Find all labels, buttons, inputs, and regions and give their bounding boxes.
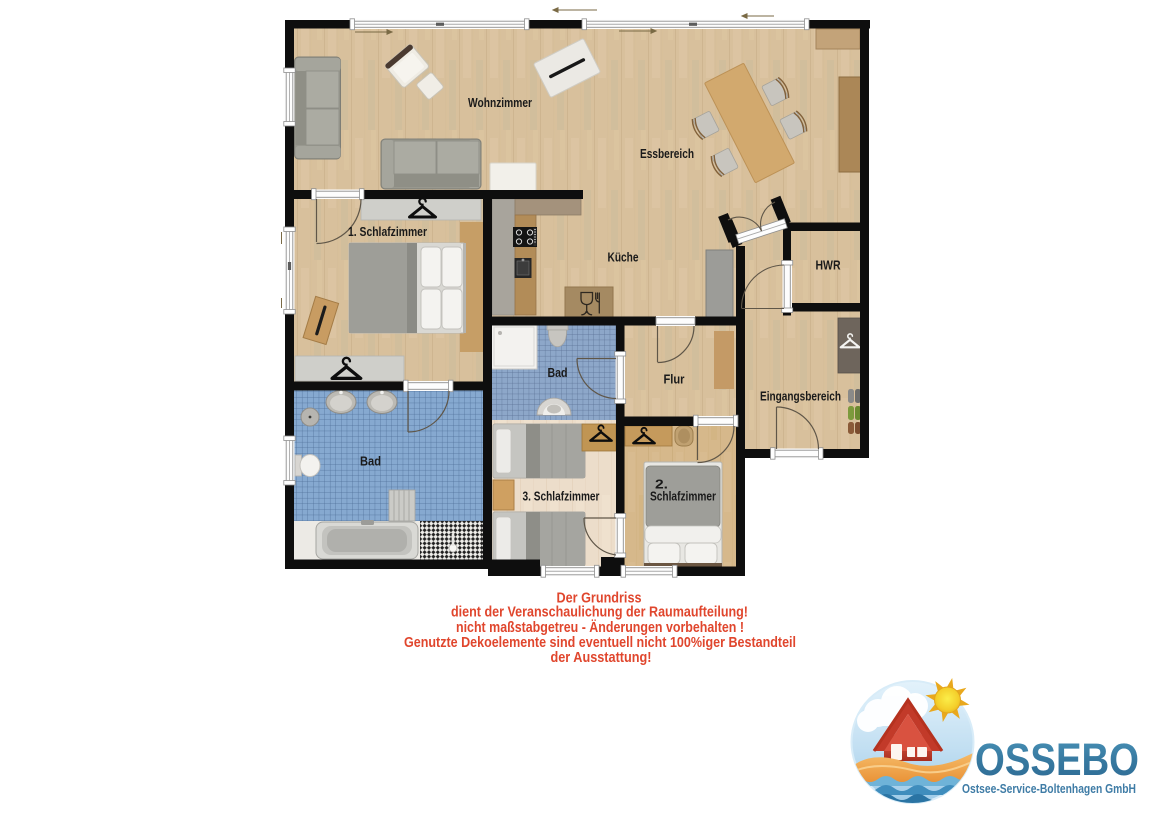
svg-text:Eingangsbereich: Eingangsbereich	[760, 389, 841, 404]
svg-text:Bad: Bad	[360, 454, 381, 469]
svg-text:der Ausstattung!: der Ausstattung!	[551, 650, 652, 666]
svg-text:dient der Veranschaulichung de: dient der Veranschaulichung der Raumauft…	[451, 604, 748, 620]
svg-text:Bad: Bad	[548, 365, 568, 380]
svg-text:HWR: HWR	[816, 258, 841, 273]
svg-text:Schlafzimmer: Schlafzimmer	[650, 489, 716, 504]
svg-text:Wohnzimmer: Wohnzimmer	[468, 95, 532, 110]
svg-text:Genutzte Dekoelemente sind eve: Genutzte Dekoelemente sind eventuell nic…	[404, 635, 796, 651]
svg-text:Ostsee-Service-Boltenhagen Gmb: Ostsee-Service-Boltenhagen GmbH	[962, 781, 1136, 796]
svg-text:Flur: Flur	[664, 372, 685, 387]
svg-text:Essbereich: Essbereich	[640, 146, 694, 161]
svg-text:nicht maßstabgetreu - Änderung: nicht maßstabgetreu - Änderungen vorbeha…	[456, 619, 744, 636]
svg-text:OSSEBO: OSSEBO	[975, 734, 1139, 785]
svg-text:3. Schlafzimmer: 3. Schlafzimmer	[523, 489, 600, 504]
svg-text:Küche: Küche	[608, 250, 639, 265]
svg-text:1. Schlafzimmer: 1. Schlafzimmer	[348, 224, 427, 239]
